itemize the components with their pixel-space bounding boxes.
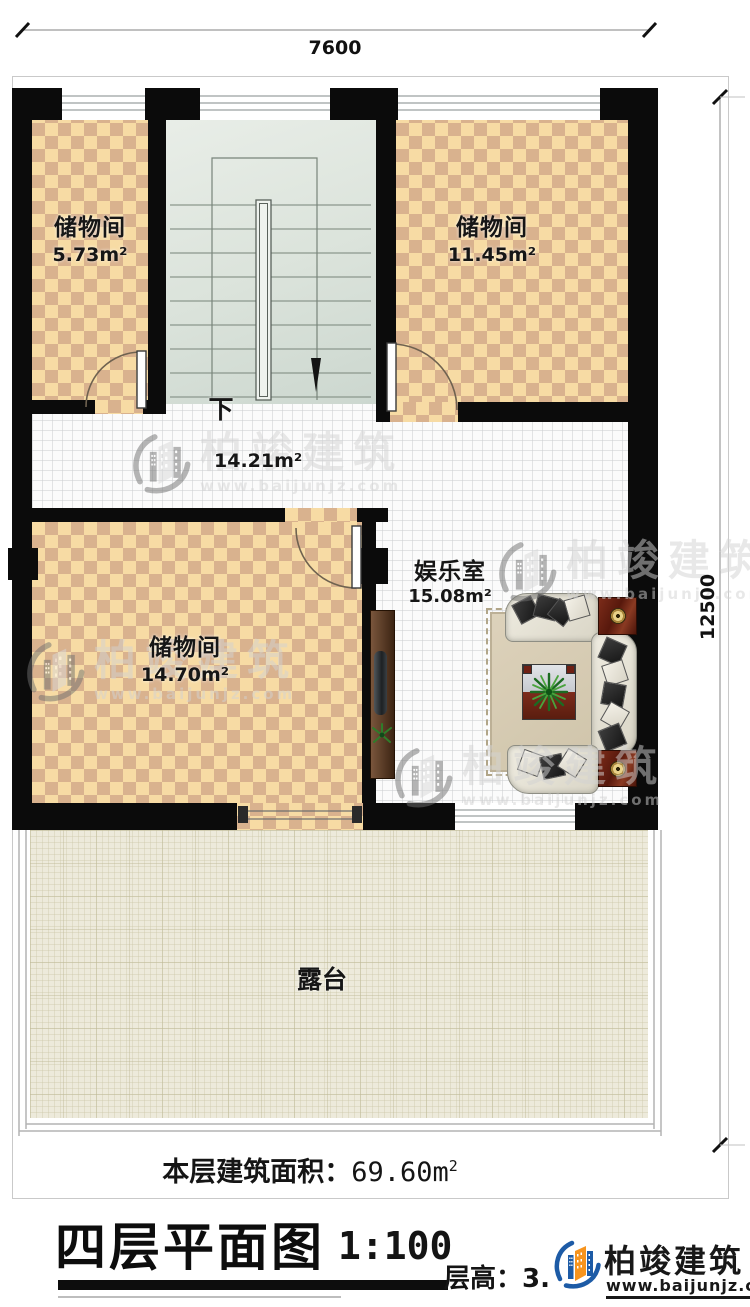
wall xyxy=(12,400,95,414)
terrace-door-opening xyxy=(237,803,363,830)
wall xyxy=(458,402,658,422)
wall xyxy=(12,803,237,830)
floor-area-text: 本层建筑面积：69.60m2 xyxy=(60,1150,560,1189)
room-area-storage-bottom-left: 14.70m² xyxy=(133,665,237,686)
wall-stair-left xyxy=(148,118,166,414)
floor-area-label: 本层建筑面积： xyxy=(162,1157,351,1188)
window xyxy=(398,88,600,120)
floor-height-label: 层高：3. xyxy=(444,1258,550,1295)
room-area-entertainment: 15.08m² xyxy=(402,587,498,607)
side-table xyxy=(598,597,637,635)
plan-scale: 1:100 xyxy=(338,1224,452,1268)
plan-title: 四层平面图 xyxy=(55,1206,325,1280)
lamp-icon xyxy=(609,607,627,625)
wall xyxy=(145,88,200,120)
dimension-right: 12500 xyxy=(697,567,719,647)
wall xyxy=(575,803,658,830)
room-label-storage-bottom-left: 储物间 xyxy=(133,636,237,661)
window xyxy=(62,88,145,120)
wall-pier xyxy=(356,548,388,584)
floor-area-sup: 2 xyxy=(449,1157,458,1175)
room-label-storage-top-right: 储物间 xyxy=(440,216,544,241)
wall xyxy=(143,400,166,414)
floor-area-value: 69.60m xyxy=(351,1157,449,1188)
floor-plan-canvas: 柏竣建筑 www.baijunjz.com 柏竣建筑 www.baijunjz.… xyxy=(0,0,750,1307)
side-table xyxy=(598,750,637,787)
dimension-top: 7600 xyxy=(300,37,370,59)
wall xyxy=(12,508,285,522)
company-logo-icon xyxy=(552,1230,602,1298)
stairs-down-label: 下 xyxy=(203,396,239,424)
lamp-icon xyxy=(609,760,627,778)
stair-floor xyxy=(166,112,376,404)
room-label-storage-top-left: 储物间 xyxy=(38,216,142,241)
wall xyxy=(376,402,390,422)
company-logo: 柏竣建筑 www.baijunjz.com xyxy=(552,1224,748,1304)
company-website: www.baijunjz.com xyxy=(606,1276,750,1299)
wall-stair-right xyxy=(376,118,396,422)
door-opening xyxy=(285,508,357,522)
title-underline xyxy=(58,1280,448,1290)
room-label-terrace: 露台 xyxy=(294,966,350,994)
cabinet-plant-icon xyxy=(371,722,393,748)
room-area-storage-top-left: 5.73m² xyxy=(38,245,142,266)
window xyxy=(200,88,330,120)
room-area-hallway: 14.21m² xyxy=(214,451,298,472)
wall-pier xyxy=(8,548,38,580)
wall xyxy=(330,88,398,120)
tv-icon xyxy=(374,651,387,715)
wall-left xyxy=(12,88,32,830)
door-opening xyxy=(390,402,458,422)
room-area-storage-top-right: 11.45m² xyxy=(440,245,544,266)
title-underline-thin xyxy=(58,1296,341,1298)
wall xyxy=(363,803,455,830)
door-opening xyxy=(95,400,143,414)
window xyxy=(455,803,575,830)
plant-icon xyxy=(528,671,570,713)
room-label-entertainment: 娱乐室 xyxy=(402,560,498,585)
